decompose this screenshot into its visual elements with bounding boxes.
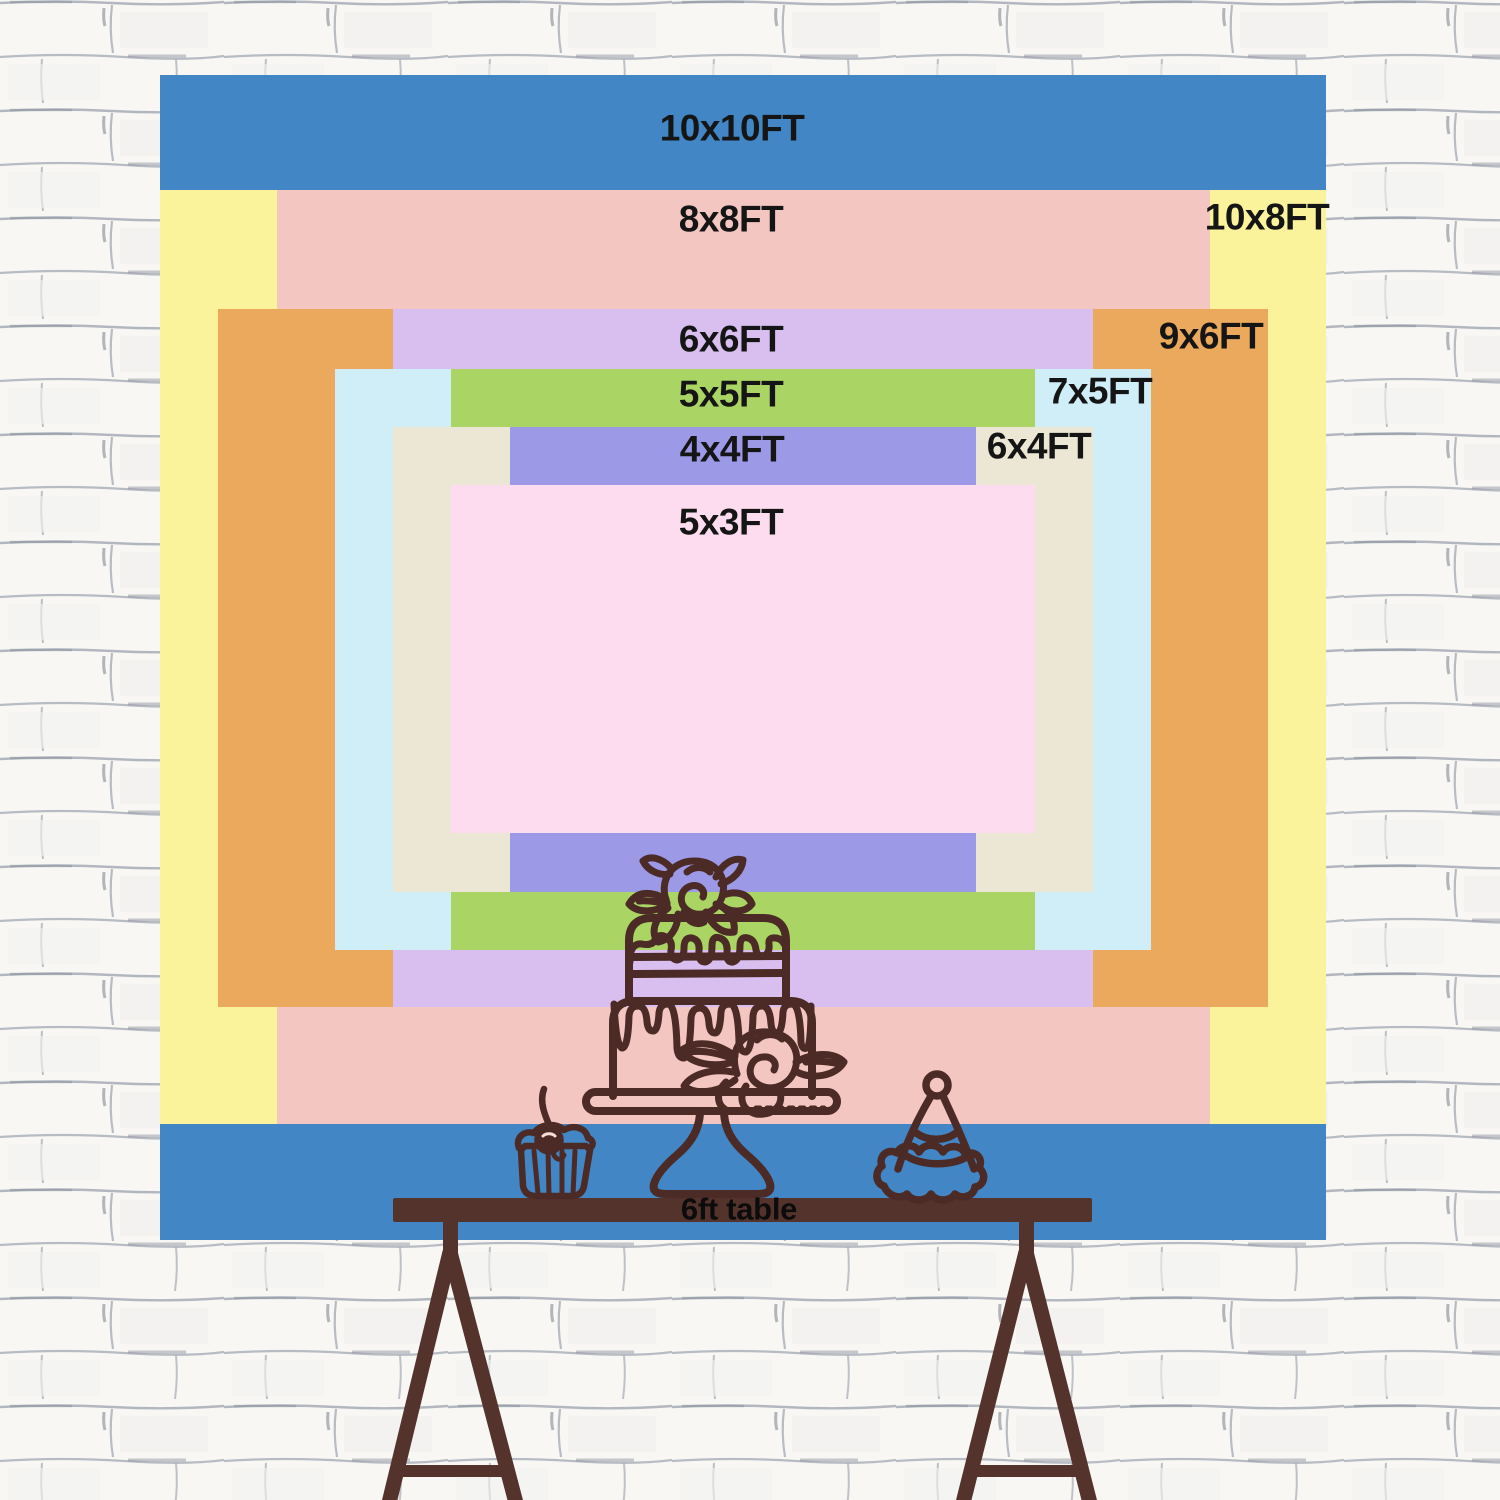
trestle-left [389, 1220, 516, 1500]
hat-brim [877, 1145, 984, 1200]
table-label: 6ft table [681, 1194, 797, 1225]
table-and-cake-illustration [0, 0, 1500, 1500]
dessert-table [389, 1198, 1092, 1500]
cake-bottom-rose [682, 1032, 844, 1114]
trestle-right [963, 1220, 1090, 1500]
cake-top-roses [629, 858, 752, 942]
cake-stand [586, 1092, 837, 1194]
cupcake-illustration [518, 1089, 593, 1196]
birthday-cake-illustration [586, 858, 844, 1194]
backdrop-size-chart: 10x10FT 10x8FT 8x8FT 9x6FT 6x6FT 7x5FT 5… [0, 0, 1500, 1500]
party-hat-illustration [877, 1074, 984, 1200]
